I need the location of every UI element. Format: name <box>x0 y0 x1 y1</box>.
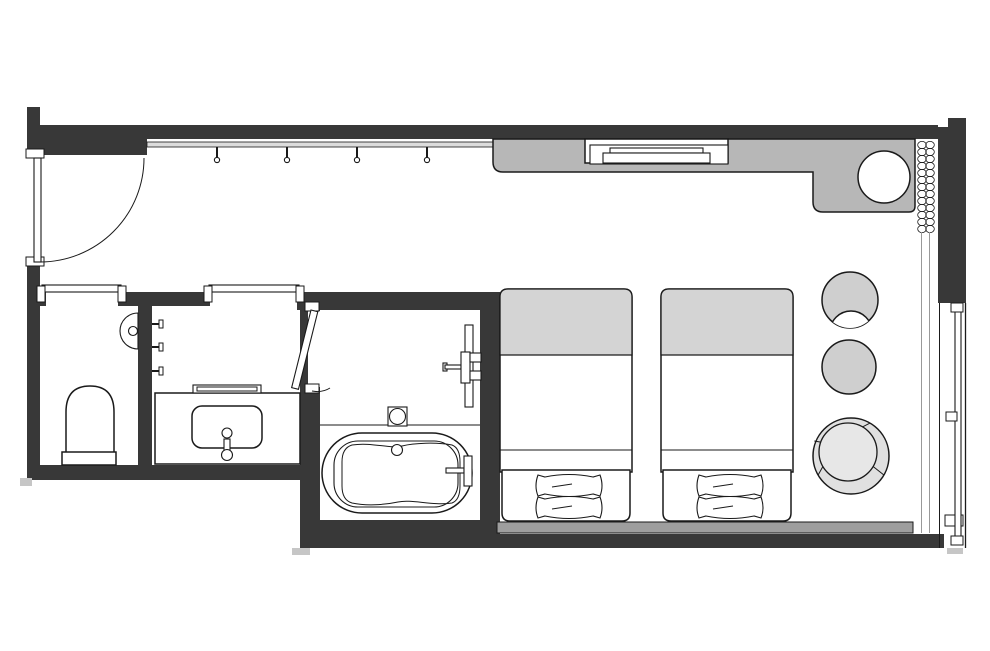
slide-cap <box>204 286 212 302</box>
counter-unit <box>493 139 915 212</box>
side-table <box>822 340 876 394</box>
wall-step-bath <box>292 548 310 555</box>
coat-rail <box>147 142 493 147</box>
coat-hook-icon <box>424 147 429 163</box>
wall-right-a <box>938 127 948 303</box>
wall-bath-bedroom <box>480 292 500 548</box>
towel-hook-icon <box>152 367 163 375</box>
entry-door <box>26 149 144 266</box>
bath-room <box>292 302 481 513</box>
slide-cap <box>118 286 126 302</box>
twin-bed-2 <box>661 289 793 521</box>
entry-door-frame-top <box>26 149 44 158</box>
pillow <box>697 475 763 497</box>
pillow <box>536 475 602 497</box>
wall-top-entry <box>27 125 147 155</box>
floor-plan-svg <box>0 0 990 651</box>
pillow <box>697 497 763 519</box>
wall-top-left-stub <box>27 107 40 127</box>
lounge-chair <box>813 418 889 494</box>
wall-divider-toilet-vanity <box>138 292 152 465</box>
window <box>940 303 966 548</box>
vanity-shelf <box>193 385 261 393</box>
wall-bath-bottom <box>300 520 500 548</box>
tv <box>590 145 728 164</box>
toilet-sliding-door <box>37 285 126 302</box>
folded-cover <box>661 289 793 355</box>
wall-step-right <box>947 548 963 554</box>
towel-hooks <box>152 320 163 375</box>
entry-door-swing-arc <box>40 158 144 262</box>
twin-bed-1 <box>500 289 632 521</box>
round-sink <box>858 151 910 203</box>
wall-top-main <box>147 125 938 139</box>
toilet-paper-roll-icon <box>129 327 138 336</box>
coat-hooks <box>214 147 429 163</box>
wall-step-left <box>20 478 32 486</box>
coat-rail-assembly <box>147 142 493 163</box>
toilet-room <box>62 313 138 465</box>
pillow <box>536 497 602 519</box>
bathtub <box>322 433 472 513</box>
wall-bath-top-c <box>297 292 500 310</box>
sliding-panel <box>42 285 121 292</box>
floor-plan-canvas <box>0 0 990 651</box>
toilet <box>66 386 114 455</box>
towel-hook-icon <box>152 320 163 328</box>
toilet-base <box>62 452 116 465</box>
coat-hook-icon <box>214 147 219 163</box>
window-sash <box>955 310 961 538</box>
entry-door-leaf <box>34 158 41 262</box>
slide-cap <box>296 286 304 302</box>
window-sash-cap-top <box>951 303 963 312</box>
bath-door-frame <box>305 302 319 311</box>
shower-mixer <box>443 352 481 383</box>
folded-cover <box>500 289 632 355</box>
sliding-panel <box>209 285 299 292</box>
floor-drain <box>388 407 407 426</box>
curtain-coil-icon <box>918 141 935 232</box>
wall-bottom-bathblock <box>27 465 310 480</box>
wall-bottom-bedroom <box>500 534 944 548</box>
coat-hook-icon <box>354 147 359 163</box>
coat-hook-icon <box>284 147 289 163</box>
curtain <box>918 141 935 533</box>
slide-cap <box>37 286 45 302</box>
headboard-panel <box>497 522 913 533</box>
window-latch <box>946 412 957 421</box>
wall-right-b <box>948 118 966 303</box>
towel-hook-icon <box>152 343 163 351</box>
bathtub-drain <box>392 445 403 456</box>
bathroom-door <box>292 310 330 392</box>
vanity-room <box>152 320 300 464</box>
vanity-sliding-door <box>204 285 304 302</box>
wall-bath-top-b <box>118 292 210 306</box>
window-sash-cap-bottom <box>951 536 963 545</box>
